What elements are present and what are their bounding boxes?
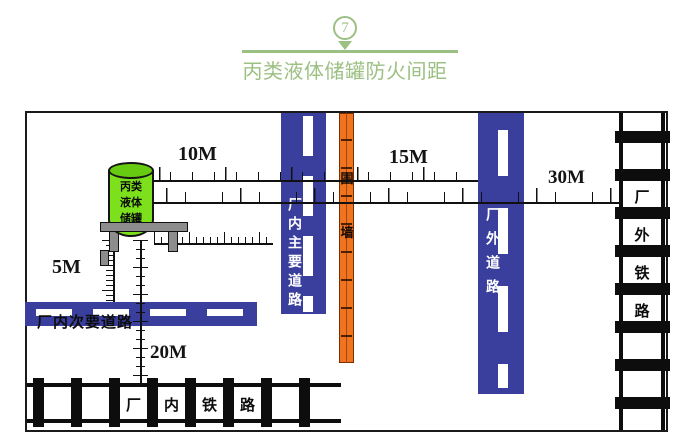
dimension-label-15m: 15M: [389, 146, 428, 169]
dimension-line-upper: [148, 180, 478, 182]
outer-railway-label-char: 路: [634, 300, 650, 321]
tank-support-post-right: [168, 231, 178, 252]
inner-railway-label-char: 路: [240, 394, 255, 415]
title-underline: [242, 50, 458, 53]
page-title: 丙类液体储罐防火间距: [0, 55, 690, 84]
inner-railway-label-char: 铁: [202, 394, 217, 415]
outer-railway-label-char: 铁: [634, 262, 650, 283]
inner-railway-label-char: 内: [164, 394, 179, 415]
inner-railway-label-char: 厂: [126, 394, 141, 415]
section-number-badge: 7: [333, 16, 357, 40]
dimension-label-5m: 5M: [52, 256, 81, 279]
dimension-label-30m: 30M: [548, 167, 585, 189]
dimension-label-10m: 10M: [178, 143, 217, 166]
tank-label-line: 液体: [109, 195, 153, 211]
badge-pointer-icon: [338, 41, 352, 50]
dimension-label-20m: 20M: [150, 342, 187, 364]
outer-railway-label-char: 外: [634, 224, 650, 245]
factory-main-road-label: 厂内主要道路: [285, 197, 305, 311]
inner-railway-sleepers: [33, 378, 335, 427]
dimension-ticks-upper: [148, 167, 478, 180]
outer-railway-label-char: 厂: [634, 186, 650, 207]
tank-top-ellipse: [108, 162, 154, 179]
dimension-ticks-20m-major: [133, 240, 148, 385]
dimension-ticks-lower: [148, 188, 621, 202]
boundary-wall-label-char: 墙: [340, 222, 354, 241]
section-number: 7: [341, 20, 349, 36]
fire-separation-diagram-page: 7 丙类液体储罐防火间距 厂内主要道路 厂外道路 厂内次要道路 围 墙 厂 内 …: [0, 0, 690, 440]
outside-factory-road-label: 厂外道路: [483, 207, 503, 303]
factory-secondary-road-label: 厂内次要道路: [37, 311, 133, 332]
tank-support-foot: [100, 250, 109, 266]
tank-label-line: 丙类: [109, 179, 153, 195]
tank-support-beam: [100, 222, 188, 232]
dimension-line-lower: [148, 202, 621, 204]
tank-label: 丙类 液体 储罐: [109, 179, 153, 227]
